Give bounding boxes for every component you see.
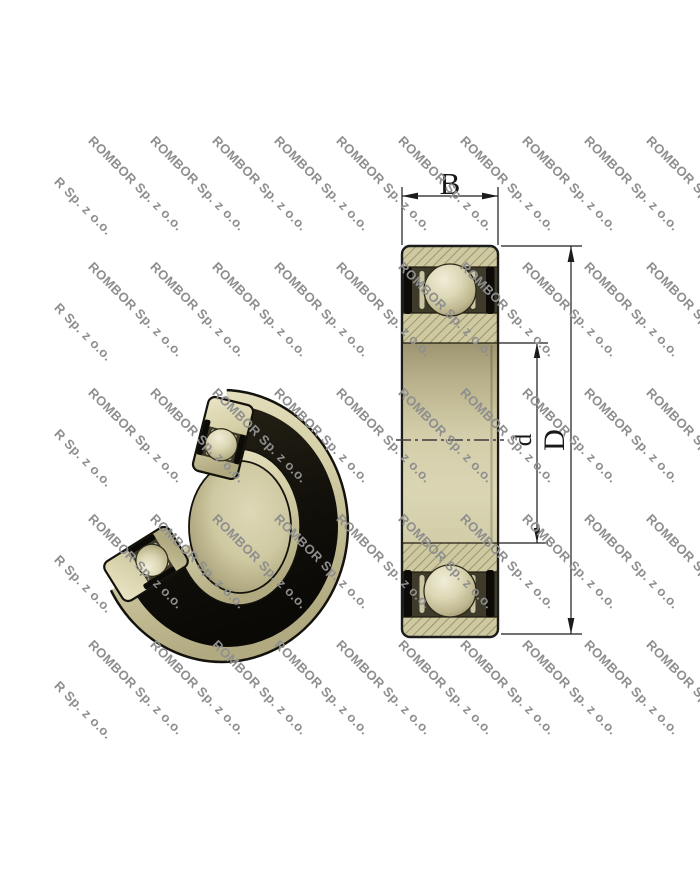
- bore-surface: [189, 461, 291, 593]
- bearing-3d-cutaway: [0, 0, 348, 756]
- ball-top: [424, 264, 476, 316]
- bore: [403, 344, 497, 543]
- dimension-label-width: B: [440, 166, 461, 201]
- dimension-label-outer-diameter: D: [538, 429, 571, 451]
- ball-bottom: [424, 565, 476, 617]
- bearing-cross-section: [396, 246, 504, 637]
- page: B D d ROMBOR Sp. z o.o.ROMBOR Sp. z o.o.…: [0, 0, 700, 869]
- technical-drawing: B D d: [0, 0, 700, 869]
- dimension-label-bore-diameter: d: [510, 433, 537, 446]
